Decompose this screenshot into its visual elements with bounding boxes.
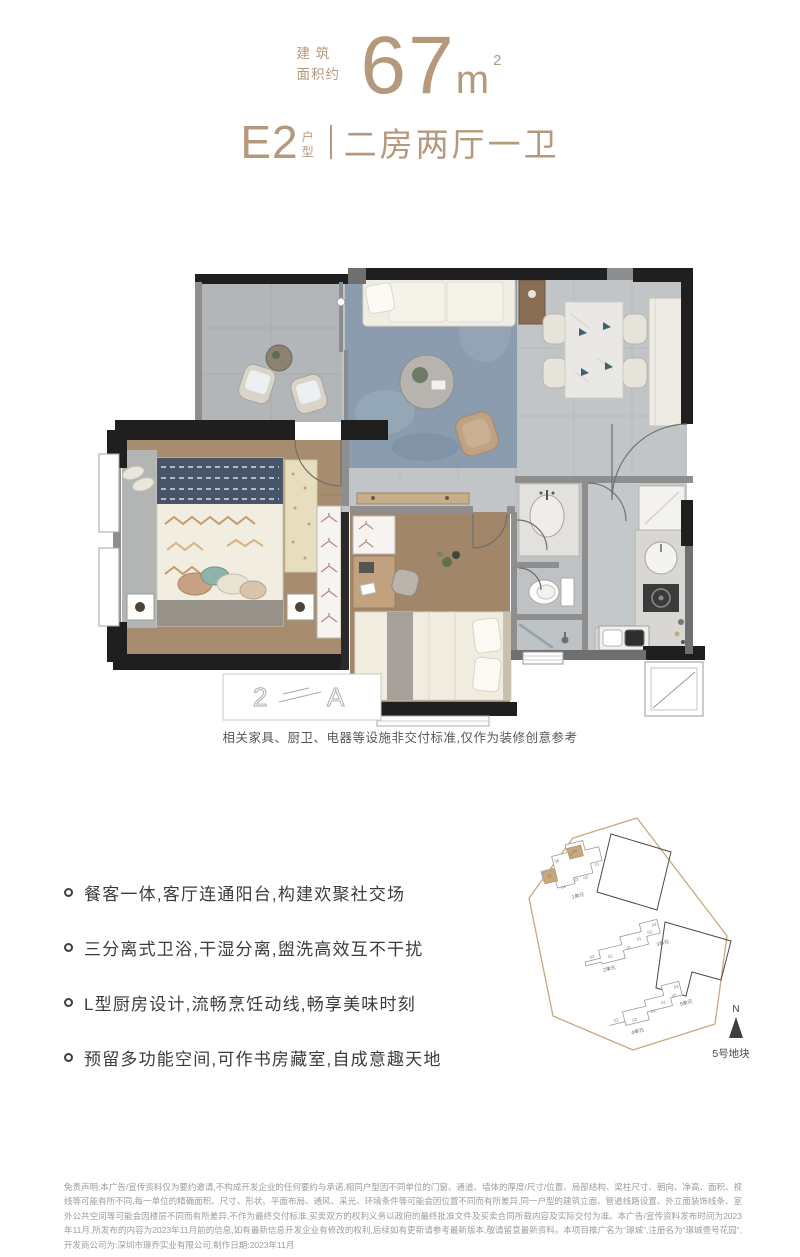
gold-rug (285, 460, 317, 572)
ac-platform-sketch: 2 A (223, 674, 381, 720)
feature-text: L型厨房设计,流畅烹饪动线,畅享美味时刻 (84, 990, 416, 1015)
site-plan: 06 07 08 01 02 03 04 05 1单元 03 02 01 (515, 810, 750, 1062)
tv-console (357, 493, 469, 504)
building-5-label: 5单元 (679, 998, 693, 1008)
north-arrow-icon (729, 1017, 743, 1038)
building-2-label: 2单元 (602, 964, 616, 974)
unit-title: E2 户 型 二房两厅一卫 (0, 115, 800, 169)
north-label: N (732, 1004, 739, 1015)
flyer-page: 建 筑 面积约 67m2 E2 户 型 二房两厅一卫 (0, 0, 800, 1257)
second-wardrobe (353, 516, 395, 554)
feature-item: 三分离式卫浴,干湿分离,盥洗高效互不干扰 (64, 935, 464, 960)
features-list: 餐客一体,客厅连通阳台,构建欢聚社交场 三分离式卫浴,干湿分离,盥洗高效互不干扰… (64, 880, 464, 1100)
building-4-5: 03 02 01 01 02 03 4单元 5单元 (603, 979, 697, 1041)
building-3-label: 3单元 (656, 938, 670, 948)
entry-cabinet (649, 298, 683, 426)
building-4-label: 4单元 (631, 1026, 645, 1036)
svg-text:2: 2 (253, 682, 267, 712)
area-label-line2: 面积约 (297, 65, 347, 86)
north-indicator: N (729, 1004, 743, 1038)
building-area: 建 筑 面积约 67m2 (0, 32, 800, 99)
svg-text:03: 03 (613, 1017, 619, 1023)
area-label: 建 筑 面积约 (297, 44, 347, 99)
area-unit: m (456, 58, 491, 102)
feature-item: L型厨房设计,流畅烹饪动线,畅享美味时刻 (64, 990, 464, 1015)
bullet-ring-icon (64, 888, 73, 897)
wash-basin (519, 484, 579, 556)
equipment-platform (645, 662, 703, 716)
unit-type-label: 户 型 (302, 130, 314, 161)
site-plan-drawing: 06 07 08 01 02 03 04 05 1单元 03 02 01 (515, 810, 750, 1062)
coffee-table (400, 355, 454, 409)
feature-text: 预留多功能空间,可作书房藏室,自成意趣天地 (84, 1045, 442, 1070)
feature-text: 三分离式卫浴,干湿分离,盥洗高效互不干扰 (84, 935, 423, 960)
header: 建 筑 面积约 67m2 E2 户 型 二房两厅一卫 (0, 32, 800, 169)
area-label-line1: 建 筑 (297, 44, 347, 65)
svg-text:A: A (327, 682, 345, 712)
area-value: 67m2 (361, 32, 504, 99)
unit-code: E2 (240, 115, 298, 169)
bullet-ring-icon (64, 998, 73, 1007)
svg-text:03: 03 (573, 877, 579, 883)
disclaimer-text: 免责声明:本广告/宣传资料仅为要约邀请,不构成开发企业的任何要约与承诺,相同户型… (64, 1180, 742, 1252)
title-divider (330, 125, 332, 159)
plot-label: 5号地块 (712, 1047, 750, 1060)
bullet-ring-icon (64, 1053, 73, 1062)
master-wardrobe (317, 506, 341, 638)
floor-plan-drawing: 2 A (95, 262, 705, 732)
svg-text:02: 02 (583, 874, 589, 880)
layout-name: 二房两厅一卫 (344, 118, 560, 166)
building-1: 06 07 08 01 02 03 04 05 1单元 (536, 837, 610, 906)
area-superscript: 2 (493, 52, 503, 69)
feature-item: 餐客一体,客厅连通阳台,构建欢聚社交场 (64, 880, 464, 905)
bullet-ring-icon (64, 943, 73, 952)
svg-text:03: 03 (589, 954, 595, 960)
master-bed (157, 458, 283, 626)
floor-plan: 2 A (95, 262, 705, 732)
plan-caption: 相关家具、厨卫、电器等设施非交付标准,仅作为装修创意参考 (0, 727, 800, 746)
feature-item: 预留多功能空间,可作书房藏室,自成意趣天地 (64, 1045, 464, 1070)
feature-text: 餐客一体,客厅连通阳台,构建欢聚社交场 (84, 880, 405, 905)
svg-text:01: 01 (594, 861, 600, 867)
toilet (529, 578, 574, 606)
building-1-label: 1单元 (571, 891, 585, 901)
